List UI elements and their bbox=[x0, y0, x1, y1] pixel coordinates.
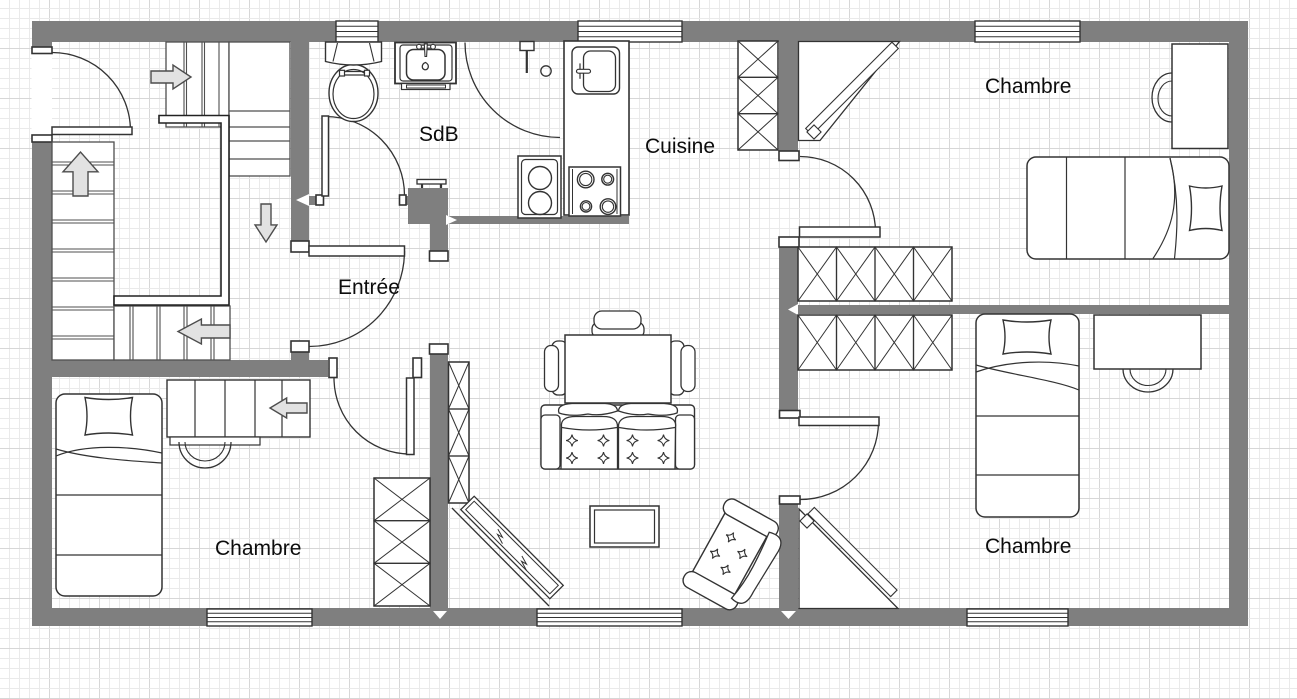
svg-text:Chambre: Chambre bbox=[985, 75, 1071, 98]
svg-text:Entrée: Entrée bbox=[338, 276, 400, 299]
svg-text:Chambre: Chambre bbox=[985, 535, 1071, 558]
svg-text:Cuisine: Cuisine bbox=[645, 135, 715, 158]
svg-text:SdB: SdB bbox=[419, 123, 459, 146]
svg-text:Chambre: Chambre bbox=[215, 537, 301, 560]
